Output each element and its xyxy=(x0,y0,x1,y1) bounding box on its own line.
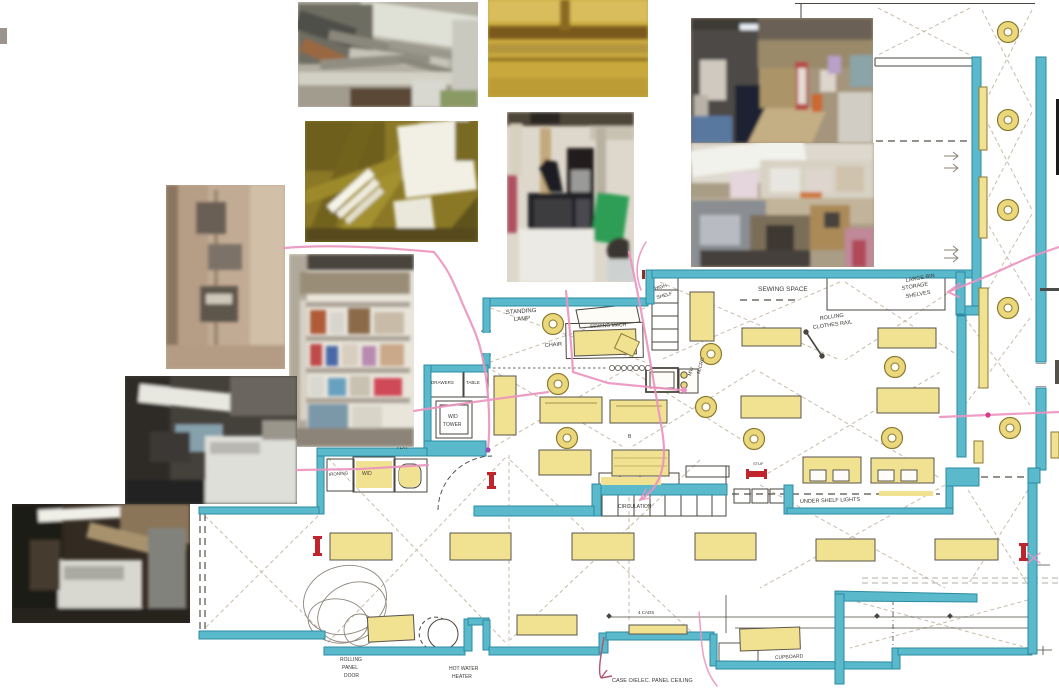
svg-text:4 CADS: 4 CADS xyxy=(638,610,654,615)
svg-text:LAMP: LAMP xyxy=(514,316,531,323)
svg-text:DOOR: DOOR xyxy=(344,673,359,679)
svg-text:TABLE: TABLE xyxy=(466,380,480,385)
svg-text:DRAWERS: DRAWERS xyxy=(431,380,454,385)
svg-text:W/D: W/D xyxy=(362,471,372,477)
svg-text:CIRCULATION: CIRCULATION xyxy=(618,504,652,510)
svg-text:PANEL: PANEL xyxy=(342,665,358,671)
svg-text:STUF: STUF xyxy=(753,461,764,466)
svg-text:HEATER: HEATER xyxy=(452,674,472,680)
svg-text:ROLLING: ROLLING xyxy=(340,657,362,663)
svg-text:CASE O/ELEC. PANEL CEILING: CASE O/ELEC. PANEL CEILING xyxy=(612,678,693,684)
svg-text:W/D: W/D xyxy=(448,414,458,420)
svg-text:TOWER: TOWER xyxy=(443,422,462,428)
svg-text:SEWING SPACE: SEWING SPACE xyxy=(758,286,808,293)
svg-text:HOT WATER: HOT WATER xyxy=(449,666,479,672)
